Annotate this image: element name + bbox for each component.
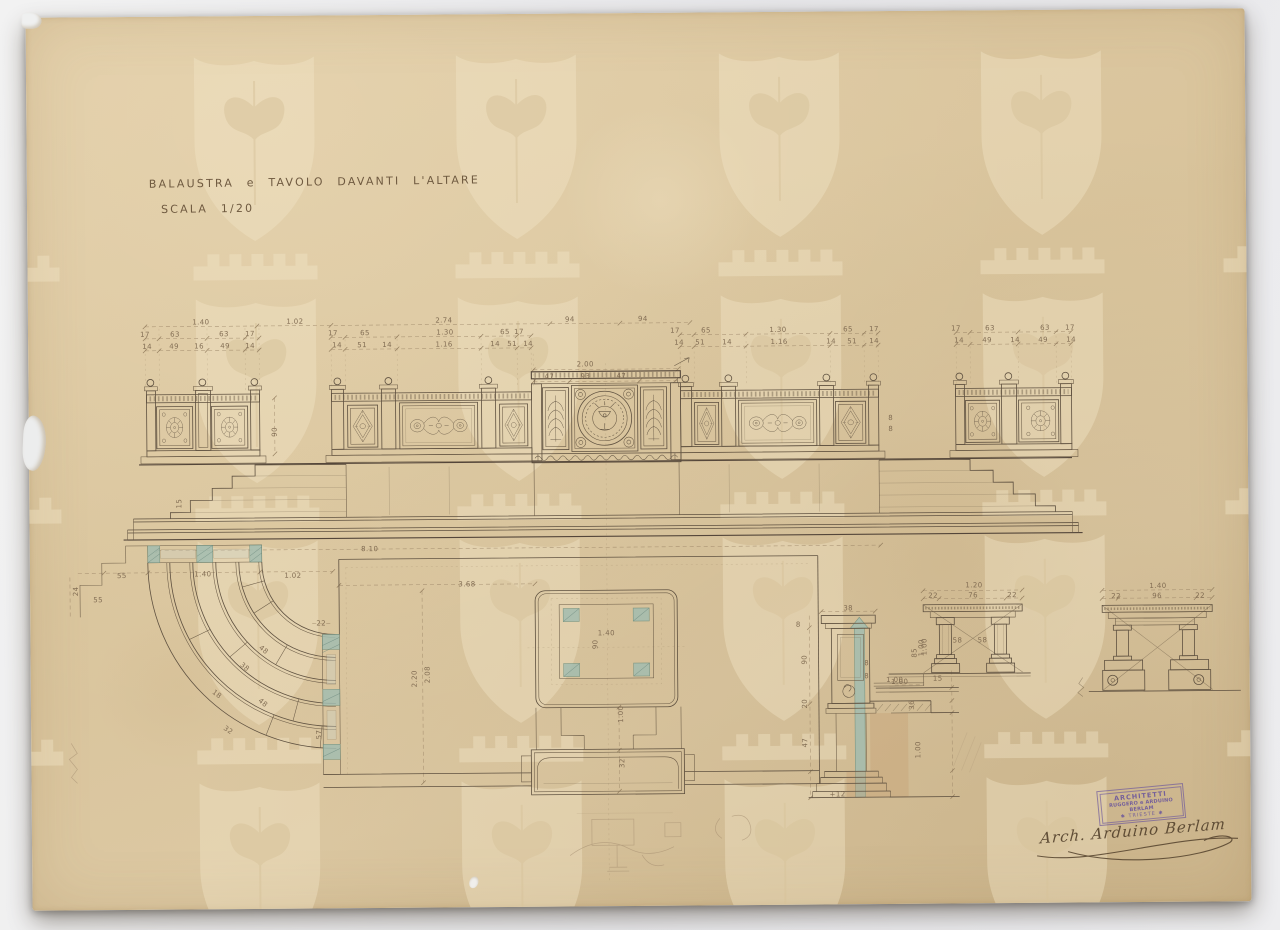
dimension-label: 90 <box>591 639 599 649</box>
dimension-label: 8 <box>864 659 869 667</box>
dimension-label: 14 <box>869 337 879 345</box>
dimension-label: 47 <box>801 738 809 748</box>
dimension-label: 1.16 <box>435 340 452 348</box>
dimension-label: 2.20 <box>411 670 419 687</box>
dimension-label: 17 <box>245 330 255 338</box>
dimension-label: 48 <box>257 697 270 709</box>
dimension-label: 18 <box>211 688 224 700</box>
dimension-label: 1.00 <box>920 638 928 655</box>
dimension-label: 1.30 <box>769 326 786 334</box>
dimension-label: 1.00 <box>886 676 903 684</box>
dimension-label: 22 <box>928 592 938 600</box>
dimension-label: 22 <box>1111 592 1121 600</box>
dimension-label: 2.00 <box>577 360 594 368</box>
dimension-label: 32 <box>222 724 235 736</box>
dimension-label: 38 <box>843 604 853 612</box>
dimension-label: 1.40 <box>598 629 615 637</box>
dimension-label: 63 <box>219 330 229 338</box>
dimension-label: 14 <box>245 342 255 350</box>
dimension-label: 57 <box>315 730 323 740</box>
dimension-label: 8 <box>888 414 893 422</box>
dimension-label: 1.40 <box>194 570 211 578</box>
dimension-label: 3.68 <box>458 580 475 588</box>
dimension-label: 17 <box>328 329 338 337</box>
dimension-label: 14 <box>826 337 836 345</box>
dimension-label: 16 <box>194 342 204 350</box>
dimension-label: 1.00 <box>617 706 625 723</box>
scan-backdrop: BALAUSTRA e TAVOLO DAVANTI L'ALTARE SCAL… <box>0 0 1280 930</box>
dimension-label: 20 <box>801 699 809 709</box>
dimension-label: +12 <box>830 790 846 798</box>
dimension-label: 55 <box>93 596 103 604</box>
dimension-label: 51 <box>357 341 367 349</box>
dimension-label: 85 <box>910 648 918 658</box>
dimension-label: 14 <box>722 338 732 346</box>
dimension-label: 22 <box>316 619 326 627</box>
dimension-label: 49 <box>1038 336 1048 344</box>
dimension-label: 8 <box>864 672 869 680</box>
dimension-label: 94 <box>565 315 575 323</box>
dimension-label: 14 <box>332 341 342 349</box>
dimension-label: 17 <box>514 328 524 336</box>
drawing-sheet: BALAUSTRA e TAVOLO DAVANTI L'ALTARE SCAL… <box>26 8 1252 911</box>
dimension-label: 76 <box>968 591 978 599</box>
dimension-label: 51 <box>847 337 857 345</box>
dimension-label: 1.02 <box>286 318 303 326</box>
dimension-label: 36 <box>908 700 916 710</box>
dimension-label: 48 <box>257 644 270 656</box>
dimension-label: 17 <box>140 331 150 339</box>
dimension-label: 17 <box>1065 324 1075 332</box>
dimension-label: 49 <box>982 336 992 344</box>
dimension-label: 14 <box>1010 336 1020 344</box>
dimension-label: 1.16 <box>770 338 787 346</box>
dimension-label: 90 <box>271 427 279 437</box>
dimension-label: 65 <box>843 325 853 333</box>
dimension-label: 51 <box>507 340 517 348</box>
dimension-label: 8 <box>888 425 893 433</box>
dimension-label: 58 <box>953 636 963 644</box>
dimension-label: 14 <box>674 339 684 347</box>
dimension-label: 63 <box>1040 324 1050 332</box>
dimension-label: 65 <box>360 329 370 337</box>
dimension-label: 63 <box>985 324 995 332</box>
dimension-label: 15 <box>933 675 943 683</box>
dimension-label: 47 <box>544 373 554 381</box>
dimension-label: 94 <box>638 315 648 323</box>
dimension-label: 2.08 <box>424 666 432 683</box>
dimension-label: 49 <box>220 342 230 350</box>
dimension-label: 24 <box>72 587 80 597</box>
dimension-label: 14 <box>490 340 500 348</box>
dimension-label: 32 <box>618 758 626 768</box>
dimension-label: 58 <box>978 636 988 644</box>
dimension-label: 1.40 <box>1149 582 1166 590</box>
dimension-label: 17 <box>670 327 680 335</box>
dimension-label: 15 <box>175 499 183 509</box>
dimension-label: 1.00 <box>914 741 922 758</box>
dimension-label: 14 <box>523 340 533 348</box>
dimension-label: 63 <box>170 331 180 339</box>
dimension-label: 93 <box>580 372 590 380</box>
paper-corner-wear <box>21 13 41 29</box>
dimension-label: 22 <box>1007 591 1017 599</box>
dimension-label: 17 <box>951 324 961 332</box>
dimension-label: 17 <box>869 325 879 333</box>
dimension-label: 2.74 <box>435 316 452 324</box>
dimension-label: 47 <box>616 372 626 380</box>
dimension-label: 1.40 <box>192 318 209 326</box>
dimension-label: 1.02 <box>284 572 301 580</box>
dimension-label: 90 <box>801 655 809 665</box>
dimension-labels-layer: 1.401.022.7494941763631717651.3065171765… <box>26 8 1252 911</box>
dimension-label: 51 <box>695 338 705 346</box>
dimension-label: 14 <box>142 343 152 351</box>
dimension-label: 38 <box>238 661 251 673</box>
dimension-label: 8.10 <box>361 545 378 553</box>
dimension-label: 55 <box>117 572 127 580</box>
dimension-label: 1.20 <box>965 581 982 589</box>
dimension-label: 14 <box>1066 336 1076 344</box>
dimension-label: 96 <box>1152 592 1162 600</box>
dimension-label: 49 <box>169 343 179 351</box>
dimension-label: 14 <box>954 336 964 344</box>
dimension-label: 1.30 <box>436 328 453 336</box>
dimension-label: 14 <box>382 341 392 349</box>
dimension-label: 65 <box>701 326 711 334</box>
dimension-label: 8 <box>796 621 801 629</box>
dimension-label: 65 <box>500 328 510 336</box>
dimension-label: 22 <box>1195 592 1205 600</box>
